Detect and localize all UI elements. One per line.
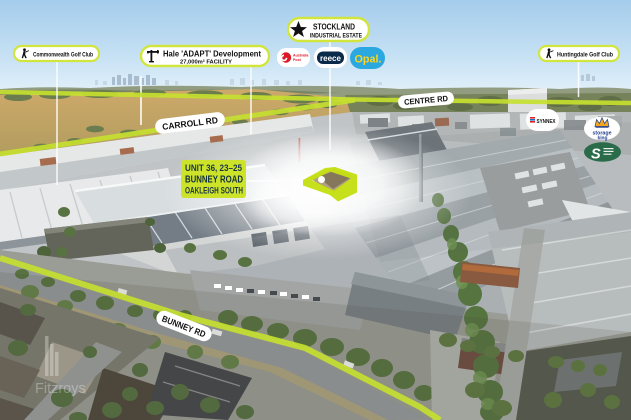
- svg-text:INDUSTRIAL ESTATE: INDUSTRIAL ESTATE: [310, 33, 362, 40]
- svg-text:king: king: [598, 136, 608, 142]
- svg-text:reece: reece: [320, 54, 342, 63]
- svg-text:Post: Post: [293, 58, 302, 62]
- svg-text:Hale 'ADAPT' Development: Hale 'ADAPT' Development: [163, 50, 261, 59]
- svg-text:STOCKLAND: STOCKLAND: [313, 23, 355, 32]
- svg-text:Australia: Australia: [293, 54, 309, 58]
- svg-text:Opal.: Opal.: [355, 54, 382, 66]
- svg-text:S: S: [591, 147, 601, 163]
- svg-text:27,000m² FACILITY: 27,000m² FACILITY: [180, 59, 232, 66]
- svg-text:BUNNEY ROAD: BUNNEY ROAD: [185, 175, 243, 186]
- svg-text:OAKLEIGH SOUTH: OAKLEIGH SOUTH: [185, 186, 243, 196]
- svg-text:Commonwealth Golf Club: Commonwealth Golf Club: [33, 52, 93, 59]
- svg-text:Fitzroys: Fitzroys: [35, 381, 86, 397]
- svg-text:SYNNEX: SYNNEX: [537, 119, 556, 125]
- svg-text:UNIT 36, 23–25: UNIT 36, 23–25: [185, 163, 242, 173]
- svg-text:Huntingdale Golf Club: Huntingdale Golf Club: [557, 52, 613, 59]
